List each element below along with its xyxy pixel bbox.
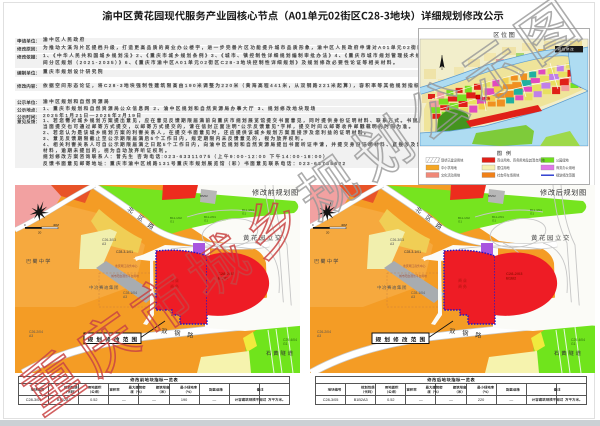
svg-text:G1: G1 — [204, 219, 208, 223]
svg-text:B1B2: B1B2 — [506, 276, 517, 281]
svg-text:A3: A3 — [317, 334, 321, 338]
svg-text:重庆两江商务中心: 重庆两江商务中心 — [403, 264, 426, 268]
svg-text:G1: G1 — [530, 212, 534, 216]
svg-text:G1: G1 — [492, 219, 496, 223]
svg-text:中小学用地: 中小学用地 — [441, 165, 458, 170]
svg-text:社会停车场用地: 社会停车场用地 — [497, 173, 520, 178]
svg-text:G1: G1 — [283, 342, 288, 346]
svg-text:G1: G1 — [242, 212, 246, 216]
svg-text:20: 20 — [326, 231, 330, 235]
svg-text:公园绿地: 公园绿地 — [556, 158, 570, 163]
svg-text:A3: A3 — [390, 242, 394, 246]
svg-text:B5/02: B5/02 — [488, 194, 496, 198]
svg-text:40M: 40M — [53, 223, 59, 227]
svg-text:A3: A3 — [411, 295, 415, 299]
svg-text:B5/02: B5/02 — [200, 194, 208, 198]
svg-text:G1: G1 — [458, 220, 462, 224]
svg-text:B1B2: B1B2 — [218, 276, 229, 281]
svg-text:A3: A3 — [102, 242, 106, 246]
svg-text:C28-3-1/01: C28-3-1/01 — [404, 250, 421, 254]
svg-text:C28-3-1/01: C28-3-1/01 — [116, 250, 133, 254]
svg-text:G1: G1 — [571, 342, 576, 346]
svg-text:G1: G1 — [170, 220, 174, 224]
svg-text:A3: A3 — [29, 334, 33, 338]
svg-text:40M: 40M — [341, 223, 347, 227]
svg-text:重庆两江商务中心: 重庆两江商务中心 — [115, 264, 138, 268]
svg-text:现状已建设用地: 现状已建设用地 — [441, 158, 464, 163]
svg-text:居住用地: 居住用地 — [497, 165, 511, 170]
svg-text:文化活动用地: 文化活动用地 — [441, 173, 461, 178]
svg-text:20: 20 — [38, 231, 42, 235]
svg-text:商务办公用地: 商务办公用地 — [556, 165, 576, 170]
svg-text:A3: A3 — [123, 295, 127, 299]
svg-text:商业用地、商务用地及其混合用地: 商业用地、商务用地及其混合用地 — [497, 158, 546, 163]
svg-text:城市阳台观景平台用地: 城市阳台观景平台用地 — [111, 274, 139, 278]
svg-text:规划修改范围: 规划修改范围 — [556, 173, 575, 178]
svg-text:城市阳台观景平台用地: 城市阳台观景平台用地 — [399, 274, 427, 278]
